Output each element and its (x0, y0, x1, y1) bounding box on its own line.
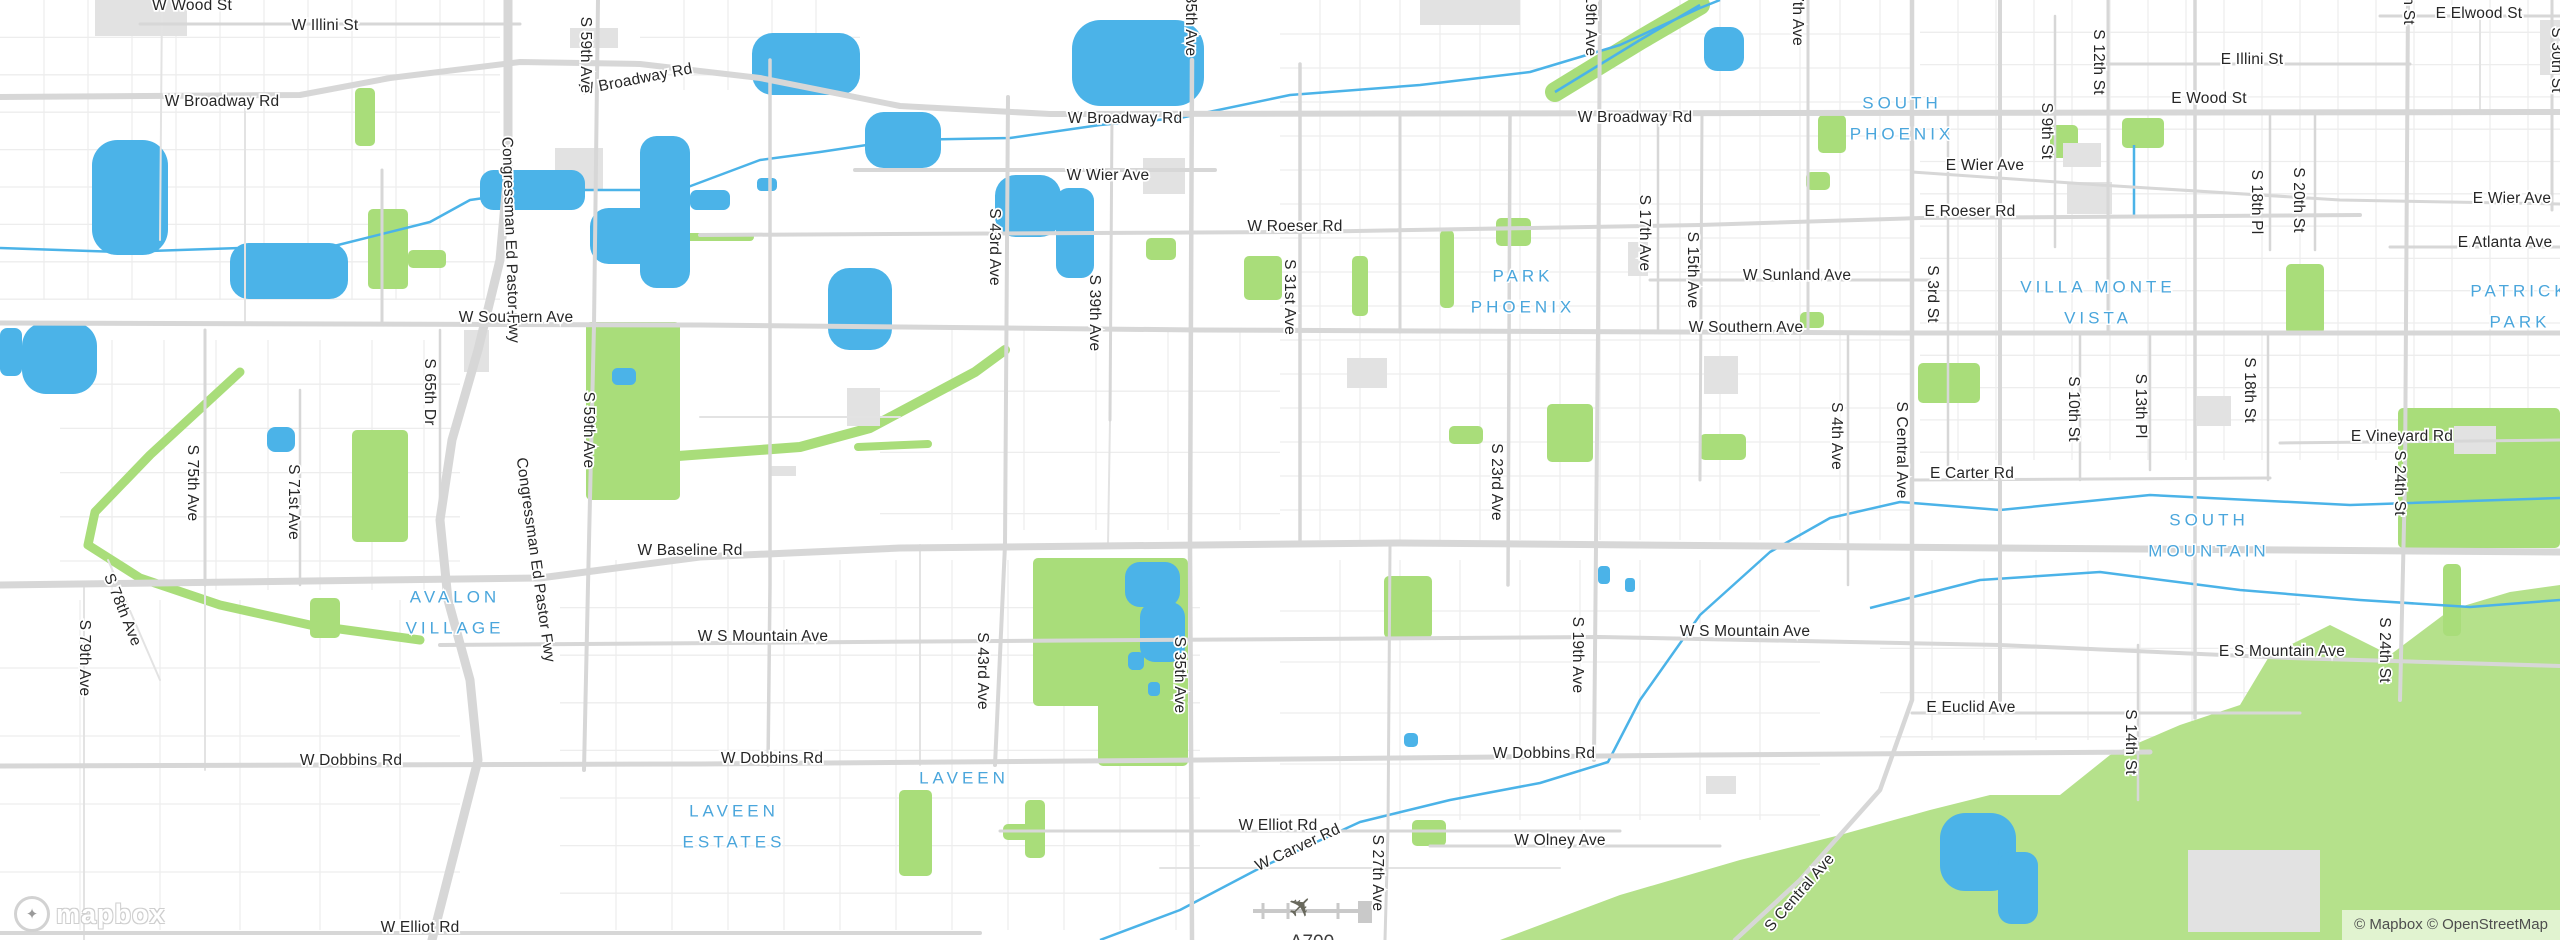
canal (1555, 5, 1700, 92)
area-label: PATRICK (2470, 281, 2560, 300)
lake (757, 178, 777, 191)
park (1244, 256, 1282, 300)
major-road (1912, 172, 2560, 204)
park (1352, 256, 1368, 316)
area-label: PHOENIX (1850, 124, 1955, 143)
lake (1128, 652, 1144, 670)
road-label: S 3rd St (1924, 265, 1941, 323)
road-label: W Dobbins Rd (300, 752, 402, 769)
major-road (0, 323, 2560, 333)
lake (1998, 852, 2038, 924)
road-label: S 59th Ave (580, 392, 597, 469)
road-label: W Baseline Rd (637, 542, 742, 559)
road-label: Congressman Ed Pastor Fwy (513, 456, 559, 663)
road-label: E Vineyard Rd (2351, 428, 2453, 445)
park (1806, 172, 1830, 190)
major-road (432, 0, 508, 940)
road-label: S 24th St (2400, 0, 2417, 25)
road-label: S 39th Ave (1086, 275, 1103, 352)
lake (1404, 733, 1418, 747)
road-label: E Wier Ave (1946, 157, 2024, 174)
park (2443, 564, 2461, 636)
area-label: VILLAGE (406, 618, 505, 637)
road-label: S 30th St (2548, 27, 2560, 93)
lake (22, 322, 97, 394)
road-label: E S Mountain Ave (2219, 643, 2345, 660)
greenway (678, 350, 1005, 456)
airplane-icon: ✈ (1281, 887, 1322, 928)
lake (1598, 566, 1610, 584)
road-label: W Wier Ave (1067, 167, 1150, 184)
road-label: E Carter Rd (1930, 465, 2014, 482)
lake (690, 190, 730, 210)
road-label: E Atlanta Ave (2458, 234, 2553, 251)
park (1818, 115, 1846, 153)
road-label: W Broadway Rd (165, 93, 280, 110)
road-label: S 24th St (2391, 450, 2408, 516)
lake (640, 136, 690, 288)
park (1700, 434, 1746, 460)
building (1420, 0, 1520, 25)
road-label: S 9th St (2038, 103, 2055, 160)
road-label: S 20th St (2290, 167, 2307, 233)
building (1704, 356, 1738, 394)
area-label: SOUTH (1862, 93, 1942, 112)
road-label: S 14th St (2122, 709, 2139, 775)
park (1449, 426, 1483, 444)
road-label: W Olney Ave (1514, 832, 1606, 849)
road-label: S 18th St (2241, 357, 2258, 423)
mapbox-logo-icon: ✦ (14, 896, 50, 932)
lake (1125, 562, 1180, 607)
road-label: E Wier Ave (2473, 190, 2551, 207)
building (771, 466, 796, 476)
building (1706, 776, 1736, 794)
minor-road (1108, 420, 1110, 545)
building (1347, 358, 1387, 388)
building (2188, 850, 2320, 932)
park (1800, 312, 1824, 328)
area-label: MOUNTAIN (2148, 541, 2269, 560)
road-label: S Central Ave (1893, 401, 1910, 498)
road-label: W Dobbins Rd (721, 750, 823, 767)
road-label: S 43rd Ave (974, 632, 991, 710)
area-label: VISTA (2064, 308, 2132, 327)
major-road (1508, 113, 1510, 585)
road-label: E Euclid Ave (1926, 699, 2015, 716)
road-label: W S Mountain Ave (698, 628, 828, 645)
area-label: LAVEEN (919, 768, 1009, 787)
area-label: SOUTH (2169, 510, 2249, 529)
area-label: AVALON (410, 587, 500, 606)
lake (612, 368, 636, 385)
road-label: E Wood St (2171, 90, 2247, 107)
park (586, 322, 680, 500)
road-label: S 24th St (2376, 617, 2393, 683)
road-label: W Wood St (152, 0, 232, 14)
road-label: W Elliot Rd (381, 919, 460, 936)
road-label: W Sunland Ave (1743, 267, 1851, 284)
road-label: S 75th Ave (184, 445, 201, 522)
lake (267, 427, 295, 452)
lake (995, 175, 1061, 237)
lake (828, 268, 892, 350)
road-label: S 35th Ave (1182, 0, 1199, 56)
park (408, 250, 446, 268)
road-label: S 15th Ave (1684, 232, 1701, 309)
road-label: S 59th Ave (577, 17, 594, 94)
road-label: S 23rd Ave (1488, 443, 1505, 521)
building (2063, 143, 2101, 167)
road-label: W Dobbins Rd (1493, 745, 1595, 762)
road-label: E Illini St (2221, 51, 2284, 68)
road-label: S 10th St (2065, 376, 2082, 442)
area-label: LAVEEN (689, 801, 779, 820)
park (1547, 404, 1593, 462)
greenway (858, 444, 928, 447)
park (2122, 118, 2164, 148)
area-label: PHOENIX (1471, 297, 1576, 316)
major-road (1190, 60, 1192, 940)
road-label: E Elwood St (2436, 5, 2523, 22)
lake (865, 112, 941, 168)
lake (1625, 578, 1635, 592)
major-road (768, 60, 770, 765)
park (355, 88, 375, 146)
road-label: S 27th Ave (1369, 835, 1386, 912)
road-label: W Illini St (292, 17, 359, 34)
road-label: S 18th Pl (2248, 170, 2265, 235)
building (2197, 396, 2231, 426)
airport-label: A700 (1290, 932, 1334, 940)
map-canvas[interactable]: ✈A700W Wood StW Illini StW Broadway RdW … (0, 0, 2560, 940)
map-viewport[interactable]: ✈A700W Wood StW Illini StW Broadway RdW … (0, 0, 2560, 940)
road-label: S 43rd Ave (986, 208, 1003, 286)
area-label: VILLA MONTE (2020, 277, 2175, 296)
road-label: S 71st Ave (285, 464, 302, 540)
road-label: S 31st Ave (1281, 259, 1298, 335)
park (1412, 820, 1446, 846)
park (1025, 800, 1045, 858)
park (899, 790, 932, 876)
building (847, 388, 880, 426)
lake (480, 170, 585, 210)
park (1146, 238, 1176, 260)
road-label: W Elliot Rd (1239, 817, 1318, 834)
lake (230, 243, 348, 299)
road-label: S 17th Ave (1636, 195, 1653, 272)
major-road (1110, 113, 1112, 420)
lake (0, 328, 22, 376)
area-label: PARK (2489, 312, 2550, 331)
park (1440, 230, 1454, 308)
road-label: S 65th Dr (421, 358, 438, 425)
road-label: W Roeser Rd (1247, 218, 1342, 235)
road-label: S 19th Ave (1582, 0, 1599, 56)
road-label: S 35th Ave (1171, 637, 1188, 714)
park (368, 209, 408, 289)
area-label: ESTATES (683, 832, 786, 851)
road-label: W Broadway Rd (1068, 110, 1183, 127)
park (352, 430, 408, 542)
road-label: S 12th St (2090, 29, 2107, 95)
road-label: W S Mountain Ave (1680, 623, 1810, 640)
area-label: PARK (1492, 266, 1553, 285)
lake (1148, 682, 1160, 696)
road-label: S 19th Ave (1569, 617, 1586, 694)
park (2286, 264, 2324, 334)
road-label: S 7th Ave (1789, 0, 1806, 46)
road-label: W Broadway Rd (1578, 109, 1693, 126)
map-attribution[interactable]: © Mapbox © OpenStreetMap (2342, 910, 2560, 940)
road-label: W Southern Ave (1689, 319, 1804, 336)
road-label: S 79th Ave (76, 620, 93, 697)
mapbox-logo[interactable]: ✦ mapbox (14, 896, 166, 932)
park (1496, 218, 1531, 246)
road-label: S 4th Ave (1828, 402, 1845, 470)
major-road (2400, 0, 2408, 700)
road-label: S 13th Pl (2132, 374, 2149, 439)
road-label: E Roeser Rd (1925, 203, 2016, 220)
lake (92, 140, 168, 255)
lake (1704, 27, 1744, 71)
mapbox-wordmark: mapbox (56, 899, 166, 930)
